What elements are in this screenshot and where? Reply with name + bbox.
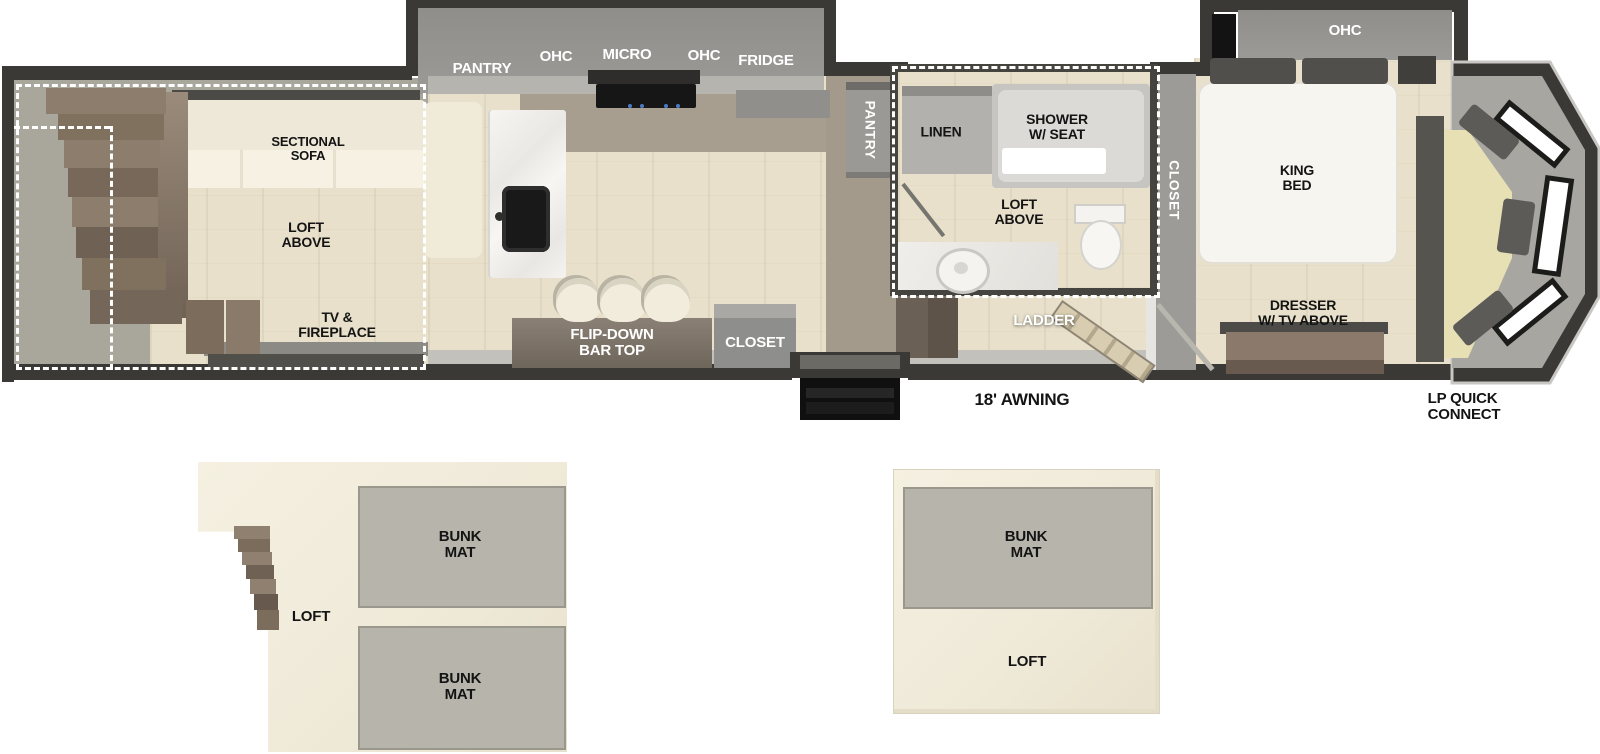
front-window (1497, 103, 1567, 165)
burner-dot (628, 104, 632, 108)
front-seat-pillow (1458, 103, 1521, 161)
nightstand (1398, 56, 1436, 84)
front-cap-inner-deck (1452, 76, 1585, 368)
loft-stair-step (250, 579, 276, 594)
label-line: FIREPLACE (298, 325, 376, 340)
ohc-slide-right-wall (1454, 0, 1468, 66)
rear-loft-dashed-inner-v (110, 126, 113, 370)
faucet (495, 212, 504, 221)
bedroom-ohc-label: OHC (1329, 23, 1362, 39)
front-seat-pillow (1496, 198, 1535, 256)
front-top-wall (1456, 62, 1552, 76)
kitchen-slide-right-wall (822, 0, 836, 66)
tv-fireplace-label: TV & FIREPLACE (298, 310, 376, 340)
bar-stool (644, 278, 690, 322)
label-line: SHOWER (1026, 112, 1088, 127)
loft-stair-step (246, 565, 274, 579)
label-line: MAT (439, 545, 482, 561)
ladder-label: LADDER (1013, 313, 1074, 329)
kitchen-sink (502, 186, 550, 252)
label-line: SOFA (271, 149, 344, 163)
bunk-mat-bottom-label: BUNK MAT (439, 671, 482, 703)
linen-label: LINEN (920, 125, 961, 140)
label-line: KING (1280, 163, 1314, 178)
label-line: DRESSER (1258, 298, 1348, 313)
sofa-chaise (424, 102, 482, 258)
burner-dot (640, 104, 644, 108)
loft-stair-step (238, 539, 270, 552)
kitchen-fridge-label: FRIDGE (738, 53, 793, 69)
entry-step-tread (806, 402, 894, 414)
burner-dot (676, 104, 680, 108)
label-line: FLIP-DOWN (570, 327, 653, 343)
king-bed-label: KING BED (1280, 163, 1314, 193)
lp-quick-connect-label: LP QUICK CONNECT (1428, 391, 1501, 423)
bunk-mat-top-label: BUNK MAT (439, 529, 482, 561)
label-line: W/ SEAT (1026, 127, 1088, 142)
rear-left-wall (2, 66, 14, 382)
sectional-sofa-label: SECTIONAL SOFA (271, 135, 344, 163)
kitchen-pantry-label: PANTRY (453, 61, 512, 77)
loft-right-label: LOFT (1008, 654, 1046, 670)
bed-foot-console (1416, 116, 1444, 362)
label-line: SECTIONAL (271, 135, 344, 149)
entry-step-tread (806, 388, 894, 398)
rear-loft-above-label: LOFT ABOVE (282, 220, 331, 250)
rv-floorplan-diagram: SECTIONAL SOFA LOFT ABOVE TV & FIREPLACE… (0, 0, 1600, 754)
shower-label: SHOWER W/ SEAT (1026, 112, 1088, 142)
kitchen-ohc-right-label: OHC (688, 48, 721, 64)
label-line: BAR TOP (570, 343, 653, 359)
bath-slide-dashed-outline (892, 66, 1160, 298)
front-seat-pillow (1452, 289, 1515, 347)
loft-stair-step (254, 594, 278, 610)
label-line: BUNK (439, 529, 482, 545)
bed-pillow (1302, 58, 1388, 84)
front-window (1535, 178, 1572, 274)
front-cap-outer-wall (1452, 62, 1599, 383)
burner-dot (664, 104, 668, 108)
loft-stair-step (242, 552, 272, 565)
entry-door-threshold (800, 355, 900, 369)
hall-pantry-label: PANTRY (863, 101, 878, 160)
bedroom-closet-label: CLOSET (1167, 160, 1182, 220)
bar-stool (600, 278, 646, 322)
label-line: W/ TV ABOVE (1258, 313, 1348, 328)
label-line: MAT (1005, 545, 1048, 561)
label-line: BUNK (439, 671, 482, 687)
dresser-front (1226, 360, 1384, 374)
label-line: LOFT (282, 220, 331, 235)
cooktop (596, 84, 696, 108)
front-window (1495, 281, 1565, 343)
front-seat-cushion-base (1444, 130, 1512, 358)
loft-stair-step (234, 526, 270, 539)
label-line: BUNK (1005, 529, 1048, 545)
range-hood (588, 70, 700, 84)
ladder-area-cabinet (896, 292, 958, 358)
label-line: LP QUICK (1428, 391, 1501, 407)
kitchen-micro-label: MICRO (603, 47, 652, 63)
label-line: TV & (298, 310, 376, 325)
label-line: BED (1280, 178, 1314, 193)
rear-top-wall (2, 66, 412, 80)
bar-top-label: FLIP-DOWN BAR TOP (570, 327, 653, 359)
kitchen-ohc-left-label: OHC (540, 49, 573, 65)
dresser-label: DRESSER W/ TV ABOVE (1258, 298, 1348, 328)
awning-label: 18' AWNING (975, 391, 1070, 409)
label-line: MAT (439, 687, 482, 703)
rear-loft-dashed-inner-h (14, 126, 110, 129)
label-line: CONNECT (1428, 407, 1501, 423)
label-line: ABOVE (995, 212, 1044, 227)
bar-stool (556, 278, 602, 322)
bunk-mat-right-label: BUNK MAT (1005, 529, 1048, 561)
label-line: ABOVE (282, 235, 331, 250)
loft-left-label: LOFT (292, 609, 330, 625)
fridge-base (736, 90, 830, 118)
bed-pillow (1210, 58, 1296, 84)
label-line: LOFT (995, 197, 1044, 212)
loft-stair-step (257, 610, 279, 630)
bath-loft-above-label: LOFT ABOVE (995, 197, 1044, 227)
mid-closet-label: CLOSET (725, 335, 785, 351)
